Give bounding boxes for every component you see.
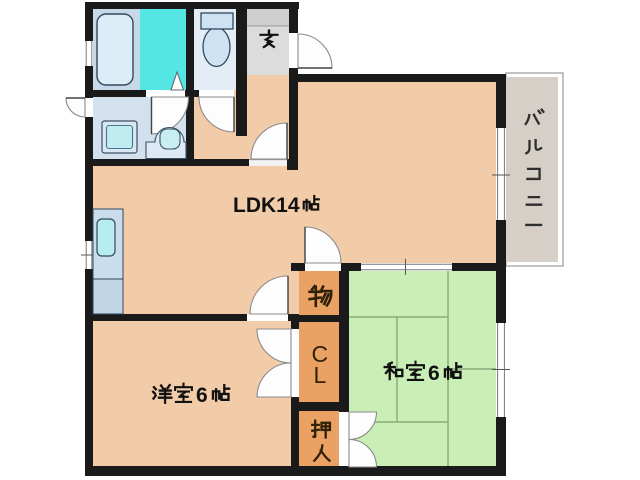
svg-text:LDK14: LDK14 [233,194,300,217]
svg-text:L: L [314,362,327,388]
svg-text:6: 6 [196,384,208,407]
svg-text:6: 6 [428,362,440,385]
